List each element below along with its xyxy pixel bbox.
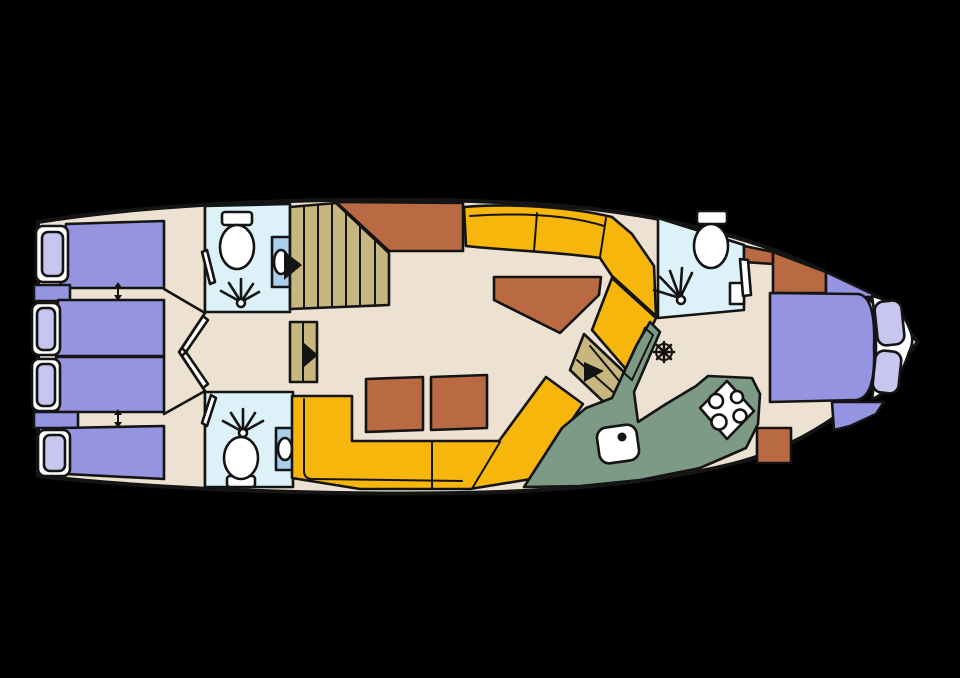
cabinet-bottom	[757, 428, 791, 463]
coffee-table-1	[366, 377, 423, 432]
sink-basin-icon	[278, 438, 292, 460]
toilet-icon	[224, 437, 258, 479]
bed-aft-2	[56, 300, 164, 356]
galley-sink-icon	[596, 423, 641, 464]
bow-pillow-2	[872, 350, 902, 394]
floor-plan-stage	[0, 0, 960, 678]
toilet-tank	[222, 212, 252, 225]
bow-pillow-1	[874, 300, 905, 347]
bathroom-aft-bottom	[202, 392, 293, 487]
pillow-3	[37, 364, 55, 406]
berth-shelf-2	[34, 412, 78, 428]
aft-cabins	[32, 221, 164, 479]
door-leaf-icon	[740, 259, 751, 296]
bed-aft-1	[60, 221, 164, 288]
bed-aft-3	[56, 357, 164, 412]
pillow-1	[42, 232, 63, 276]
bow-double-bed	[770, 293, 874, 402]
boat-floor-plan	[0, 0, 960, 678]
berth-shelf-1	[34, 285, 70, 301]
bed-aft-4	[62, 426, 164, 479]
pillow-4	[44, 435, 65, 471]
toilet-icon	[220, 225, 254, 269]
pillow-2	[37, 308, 55, 350]
toilet-tank	[697, 211, 727, 224]
bathroom-aft-top	[202, 204, 290, 312]
toilet-icon	[694, 224, 728, 268]
coffee-table-2	[431, 375, 487, 430]
stairs-small	[290, 322, 318, 382]
